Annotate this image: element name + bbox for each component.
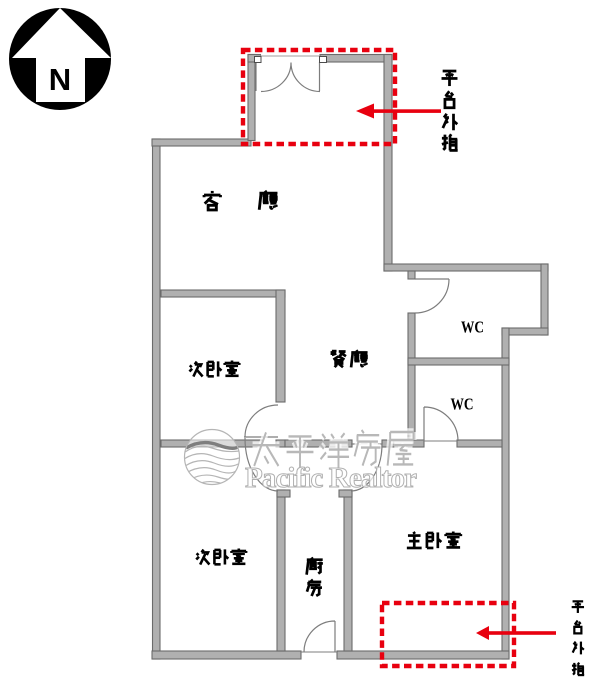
svg-text:WC: WC <box>461 318 484 337</box>
svg-text:WC: WC <box>451 395 474 414</box>
svg-text:N: N <box>49 62 71 97</box>
svg-text:Pacific Realtor: Pacific Realtor <box>245 462 417 494</box>
